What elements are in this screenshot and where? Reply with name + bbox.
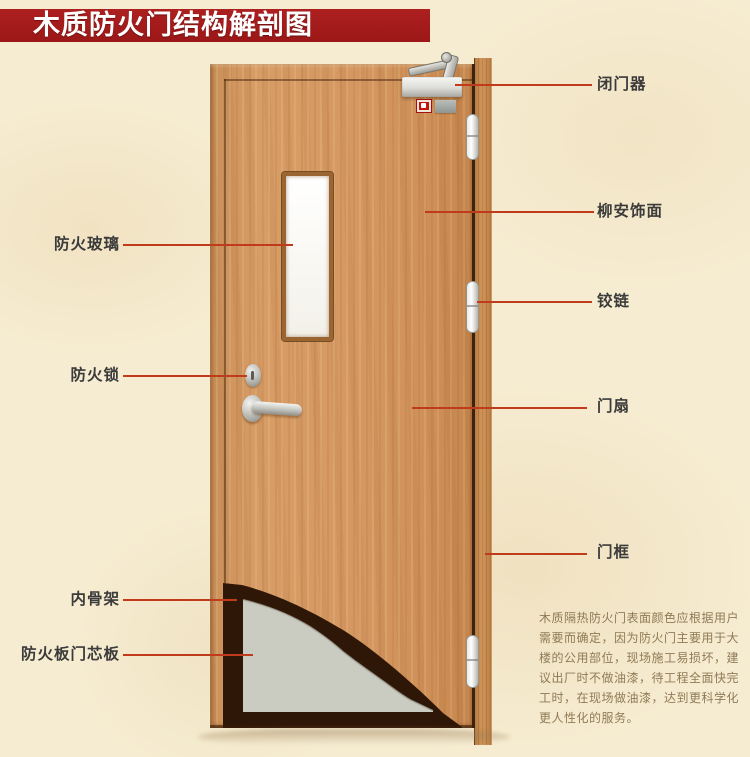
description-line: 木质隔热防火门表面颜色应根据用户 bbox=[539, 608, 739, 628]
door-closer-pivot bbox=[441, 52, 452, 63]
hinge-middle bbox=[466, 281, 479, 333]
description-text: 木质隔热防火门表面颜色应根据用户 需要而确定，因为防火门主要用于大 楼的公用部位… bbox=[539, 608, 739, 728]
leader-line-core-board bbox=[123, 654, 253, 656]
description-line: 议出厂时不做油漆，待工程全面快完 bbox=[539, 668, 739, 688]
label-core-board: 防火板门芯板 bbox=[21, 646, 120, 664]
leader-line-inner-skeleton bbox=[123, 599, 237, 601]
description-line: 楼的公用部位，现场施工易损坏，建 bbox=[539, 648, 739, 668]
leader-line-door-frame bbox=[485, 553, 587, 555]
label-veneer: 柳安饰面 bbox=[597, 203, 663, 221]
hinge-bottom bbox=[466, 635, 479, 688]
label-door-closer: 闭门器 bbox=[597, 76, 647, 94]
leader-line-fire-glass bbox=[123, 244, 293, 246]
hinge-top bbox=[466, 114, 479, 160]
closer-mount-plate bbox=[435, 100, 456, 113]
page-title: 木质防火门结构解剖图 bbox=[0, 9, 430, 42]
door-leaf-groove-vertical bbox=[224, 79, 226, 583]
leader-line-door-closer bbox=[455, 84, 592, 86]
label-fire-glass: 防火玻璃 bbox=[54, 236, 120, 254]
alarm-indicator bbox=[417, 100, 431, 112]
leader-line-fire-lock bbox=[123, 375, 247, 377]
label-fire-lock: 防火锁 bbox=[70, 367, 120, 385]
label-hinge: 铰链 bbox=[597, 293, 630, 311]
leader-line-door-leaf bbox=[412, 407, 587, 409]
door-closer-body bbox=[402, 77, 462, 97]
description-line: 更人性化的服务。 bbox=[539, 708, 739, 728]
lock-cylinder bbox=[245, 364, 261, 387]
door-bottom-edge bbox=[210, 725, 473, 728]
leader-line-veneer bbox=[425, 211, 594, 213]
leader-line-hinge bbox=[477, 301, 592, 303]
fire-glass-window bbox=[282, 172, 333, 341]
label-door-frame: 门框 bbox=[597, 544, 630, 562]
diagram-canvas: 木质防火门结构解剖图 防火玻璃 防火锁 内骨架 防火板门芯板 闭门器 柳安饰面 … bbox=[0, 0, 750, 757]
description-line: 需要而确定，因为防火门主要用于大 bbox=[539, 628, 739, 648]
label-door-leaf: 门扇 bbox=[597, 398, 630, 416]
description-line: 工时，在现场做油漆，达到更科学化 bbox=[539, 688, 739, 708]
door-floor-shadow bbox=[198, 729, 510, 745]
label-inner-skeleton: 内骨架 bbox=[70, 591, 120, 609]
